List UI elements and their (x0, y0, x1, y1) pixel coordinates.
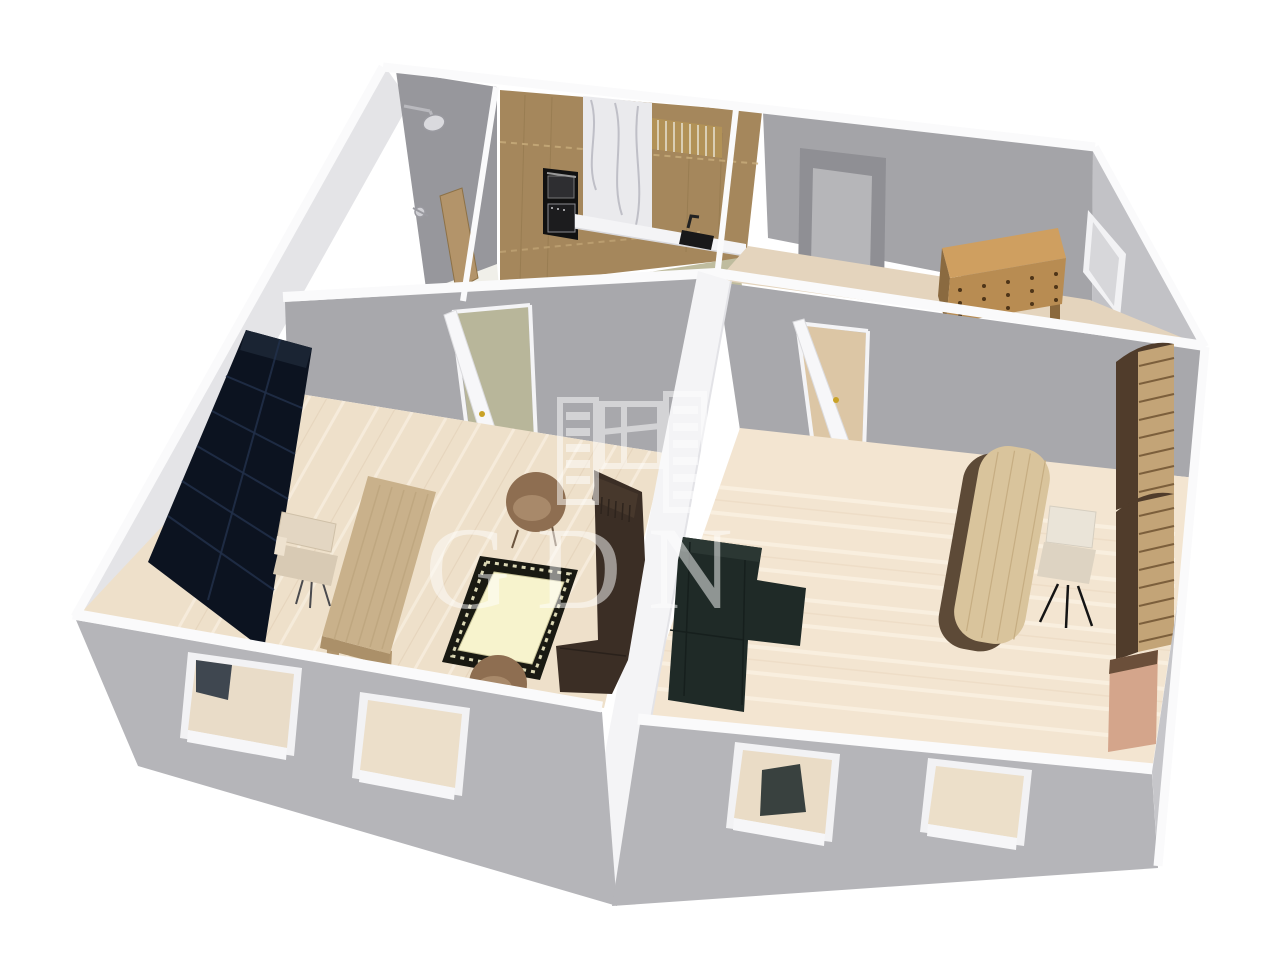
door-handle-icon (833, 397, 839, 403)
floor-plan-render: GDN (0, 0, 1280, 972)
front-window-3 (726, 742, 840, 846)
front-window-2 (352, 692, 470, 800)
watermark-text: GDN (425, 503, 759, 634)
wardrobe-pink (1108, 650, 1158, 752)
shelving-unit-lower (1116, 493, 1174, 660)
shelving-unit-upper (1116, 343, 1174, 510)
door-handle-icon (479, 411, 485, 417)
front-window-4 (920, 758, 1032, 850)
chair-back (1046, 506, 1096, 548)
front-window-1 (180, 652, 302, 760)
window-view-sofa (760, 764, 806, 816)
oven-stack (543, 168, 578, 240)
